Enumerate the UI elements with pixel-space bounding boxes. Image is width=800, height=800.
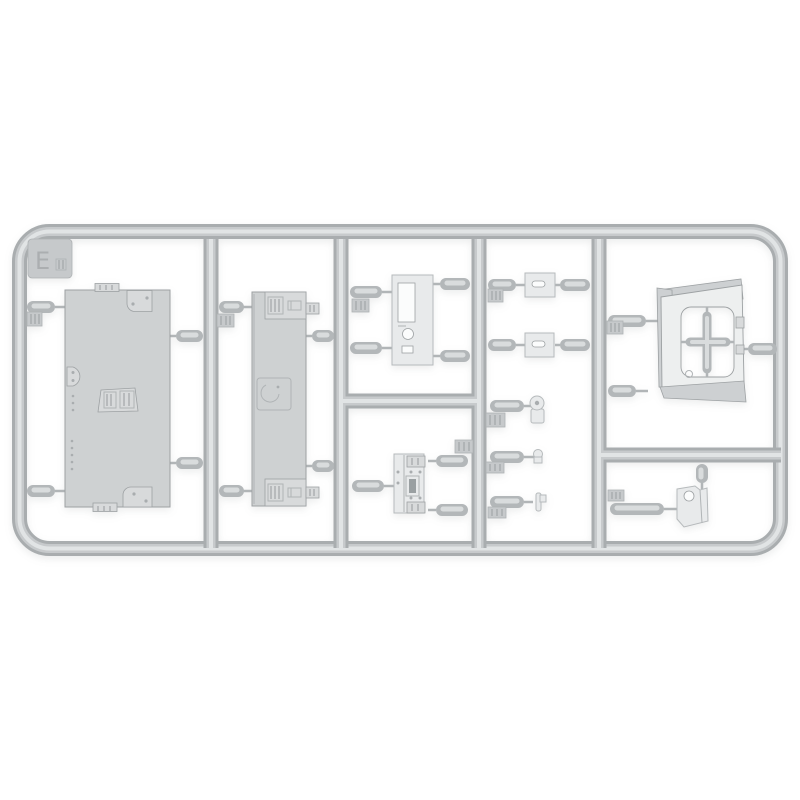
part-number-tag <box>486 413 505 427</box>
part-slotted-square <box>525 273 555 297</box>
part-small-knob <box>534 450 543 464</box>
part-number-tag <box>607 321 623 334</box>
part-number-tag <box>486 462 504 473</box>
sprue: E <box>20 232 782 549</box>
sprue-letter: E <box>35 247 50 275</box>
part-number-tag <box>217 314 234 327</box>
part-slotted-square <box>525 333 554 357</box>
part-latch-plate <box>394 454 425 513</box>
part-hatch-frame <box>657 279 746 402</box>
part-number-tag <box>488 289 503 302</box>
part-small-key <box>536 493 546 511</box>
part-number-tag <box>488 507 506 518</box>
sprue-letter-tag: E <box>28 239 72 278</box>
part-pierced-bracket <box>677 486 708 527</box>
part-number-tag <box>455 440 473 453</box>
part-number-tag <box>352 299 369 312</box>
part-pierced-plate <box>392 275 433 365</box>
product-photo: E <box>0 0 800 800</box>
part-number-tag <box>608 490 624 501</box>
part-narrow-hatch-panel <box>252 292 319 506</box>
part-large-door-panel <box>65 284 170 512</box>
model-sprue-photo: E <box>0 0 800 800</box>
part-number-tag <box>27 312 42 326</box>
part-ball-knob <box>530 396 544 423</box>
